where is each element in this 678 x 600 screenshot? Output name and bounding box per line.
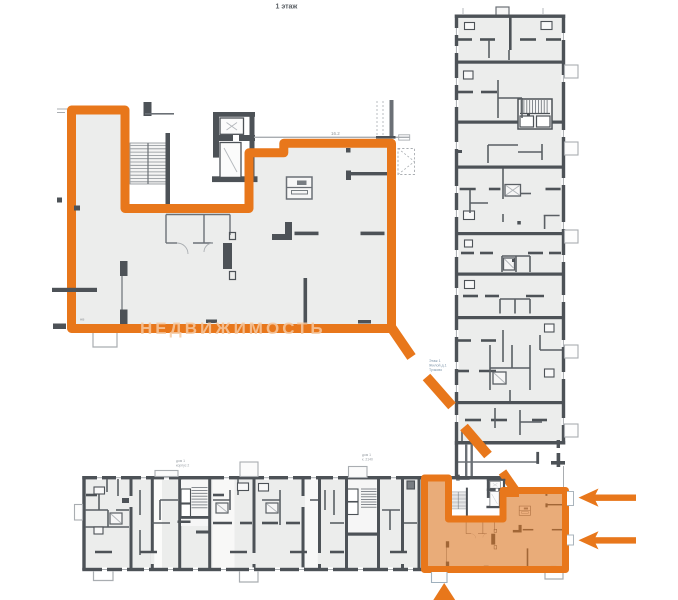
svg-text:корпус 2: корпус 2 bbox=[176, 464, 189, 468]
svg-text:НЕДВИЖИМОСТЬ: НЕДВИЖИМОСТЬ bbox=[140, 319, 326, 338]
svg-text:1 этаж: 1 этаж bbox=[276, 4, 299, 11]
svg-text:дом 1: дом 1 bbox=[176, 459, 185, 463]
svg-text:нв: нв bbox=[80, 317, 84, 322]
svg-text:Тучково: Тучково bbox=[429, 368, 442, 372]
svg-text:Жилой д.1: Жилой д.1 bbox=[429, 364, 447, 368]
svg-text:к. 2140: к. 2140 bbox=[362, 458, 373, 462]
svg-text:Этаж 1: Этаж 1 bbox=[429, 359, 441, 363]
svg-text:16.2: 16.2 bbox=[331, 131, 340, 136]
svg-text:дом 1: дом 1 bbox=[362, 453, 371, 457]
